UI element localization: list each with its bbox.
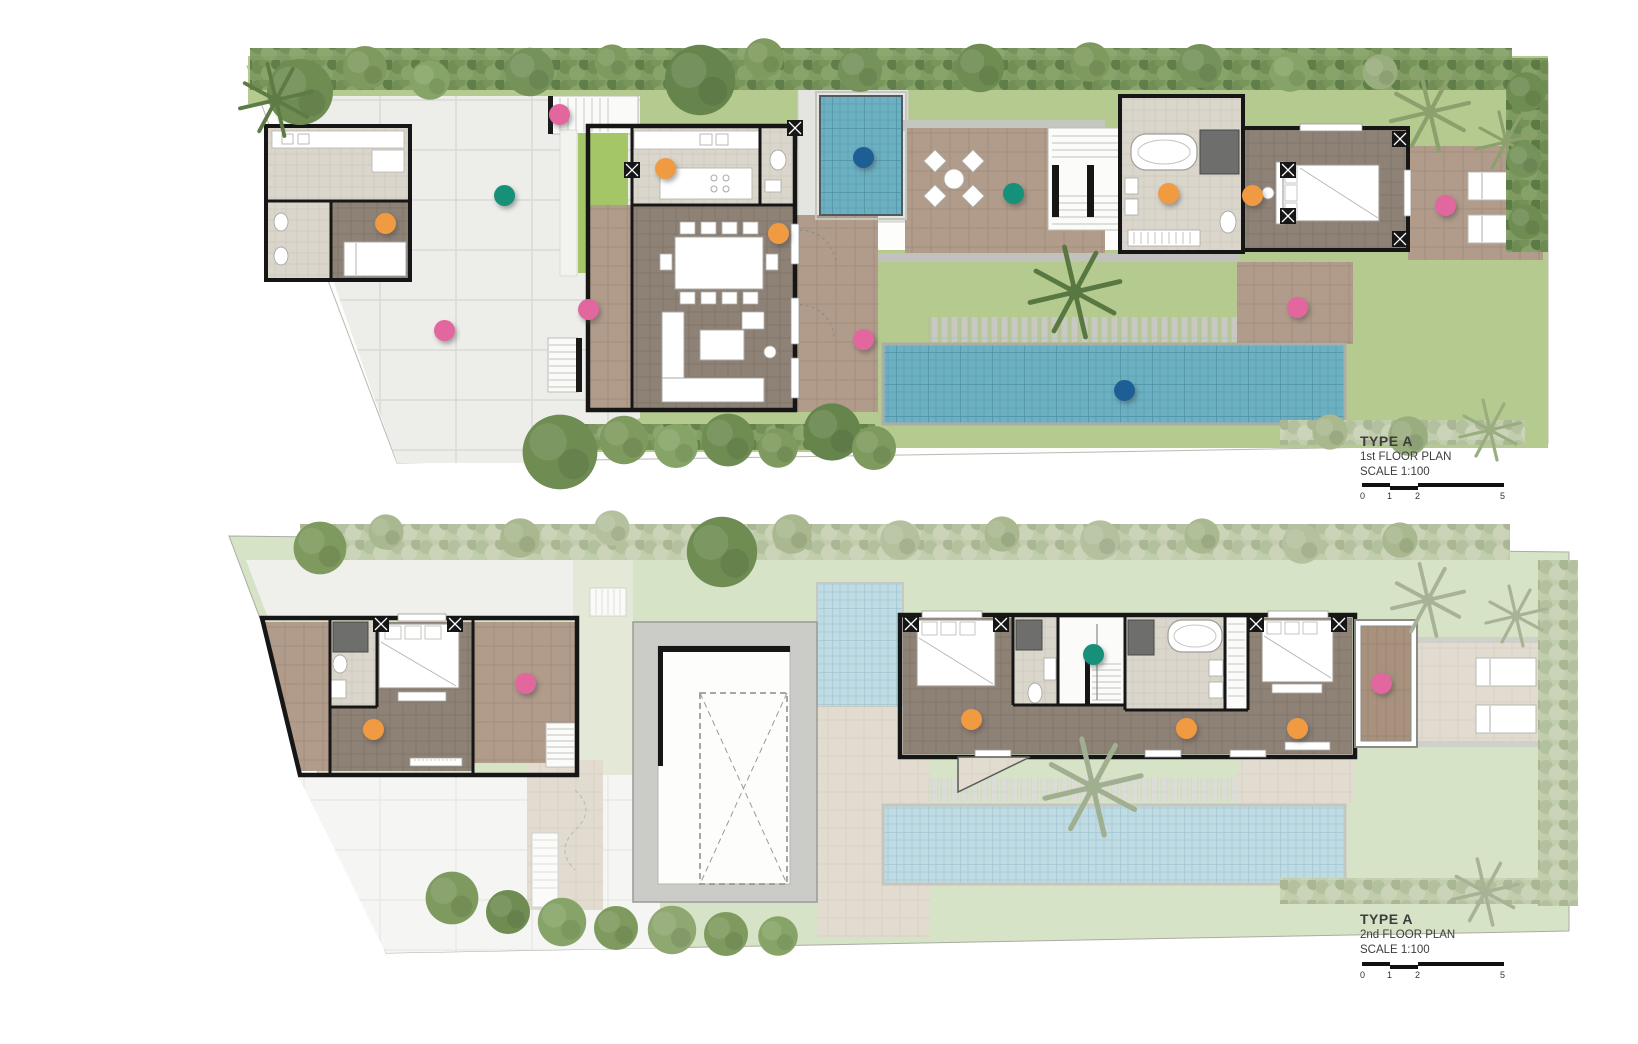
scalebar-tick: 0 [1360, 970, 1365, 980]
bed-1 [1283, 165, 1379, 221]
marker-pool-deck[interactable] [1287, 297, 1308, 318]
scalebar-tick: 1 [1387, 491, 1392, 501]
marker-spa-pool[interactable] [853, 147, 874, 168]
marker-swimming-pool[interactable] [1114, 380, 1135, 401]
scalebar-tick: 0 [1360, 491, 1365, 501]
marker-bedroom-1-terrace[interactable] [1435, 195, 1456, 216]
swimming-pool [883, 344, 1345, 424]
marker-kitchen[interactable] [655, 158, 676, 179]
bathtub [1131, 134, 1197, 170]
marker-courtyard[interactable] [1003, 183, 1024, 204]
shower [1200, 130, 1239, 174]
scalebar-tick: 2 [1415, 491, 1420, 501]
marker-driveway-court[interactable] [494, 185, 515, 206]
scalebar-tick: 1 [1387, 970, 1392, 980]
bedroom-1 [1243, 124, 1411, 250]
floor1-scalebar: 0 1 2 5 [1362, 483, 1504, 501]
marker-bedroom-1[interactable] [1242, 185, 1263, 206]
scalebar-tick: 2 [1415, 970, 1420, 980]
marker-bedroom-3[interactable] [961, 709, 982, 730]
marker-dining[interactable] [768, 223, 789, 244]
sun-lounger [1476, 705, 1536, 733]
marker-bathroom-1[interactable] [1158, 183, 1179, 204]
scalebar-tick: 5 [1500, 491, 1505, 501]
marker-entry-steps[interactable] [549, 104, 570, 125]
kitchen-counter [634, 131, 760, 149]
floor1-type: TYPE A [1360, 432, 1451, 450]
maid-bed [344, 242, 406, 276]
foyer-stair [548, 338, 582, 392]
bedroom-2-block [262, 614, 577, 775]
marker-maid-room[interactable] [375, 213, 396, 234]
marker-master-balcony[interactable] [1371, 673, 1392, 694]
floor1-plan-name: 1st FLOOR PLAN [1360, 450, 1451, 465]
marker-stair-hall[interactable] [1083, 644, 1104, 665]
floor2-plan [229, 510, 1578, 956]
floor2-type: TYPE A [1360, 910, 1455, 928]
void-roof [633, 622, 817, 902]
floor-plan-sheet: TYPE A 1st FLOOR PLAN SCALE 1:100 0 1 2 … [0, 0, 1638, 1044]
stair-1f [1048, 128, 1125, 230]
pool-below [883, 805, 1345, 884]
marker-master-bedroom[interactable] [1287, 718, 1308, 739]
marker-corridor[interactable] [1176, 718, 1197, 739]
marker-driveway[interactable] [434, 320, 455, 341]
marker-foyer[interactable] [578, 299, 599, 320]
floor1-label: TYPE A 1st FLOOR PLAN SCALE 1:100 [1360, 432, 1451, 480]
utility-block [266, 126, 410, 280]
living-terrace [795, 215, 878, 412]
floor1-plan [240, 38, 1548, 489]
plan-drawing [0, 0, 1638, 1044]
sun-lounger [1476, 658, 1536, 686]
scalebar-tick: 5 [1500, 970, 1505, 980]
spa-pool-below [817, 583, 903, 707]
floor2-scalebar: 0 1 2 5 [1362, 962, 1504, 980]
marker-living-terrace[interactable] [853, 329, 874, 350]
floor1-scale: SCALE 1:100 [1360, 465, 1451, 480]
marker-bedroom-2-terrace[interactable] [515, 673, 536, 694]
floor2-plan-name: 2nd FLOOR PLAN [1360, 928, 1455, 943]
bathroom-1 [1120, 96, 1243, 252]
floor2-label: TYPE A 2nd FLOOR PLAN SCALE 1:100 [1360, 910, 1455, 958]
marker-bedroom-2[interactable] [363, 719, 384, 740]
floor2-scale: SCALE 1:100 [1360, 943, 1455, 958]
